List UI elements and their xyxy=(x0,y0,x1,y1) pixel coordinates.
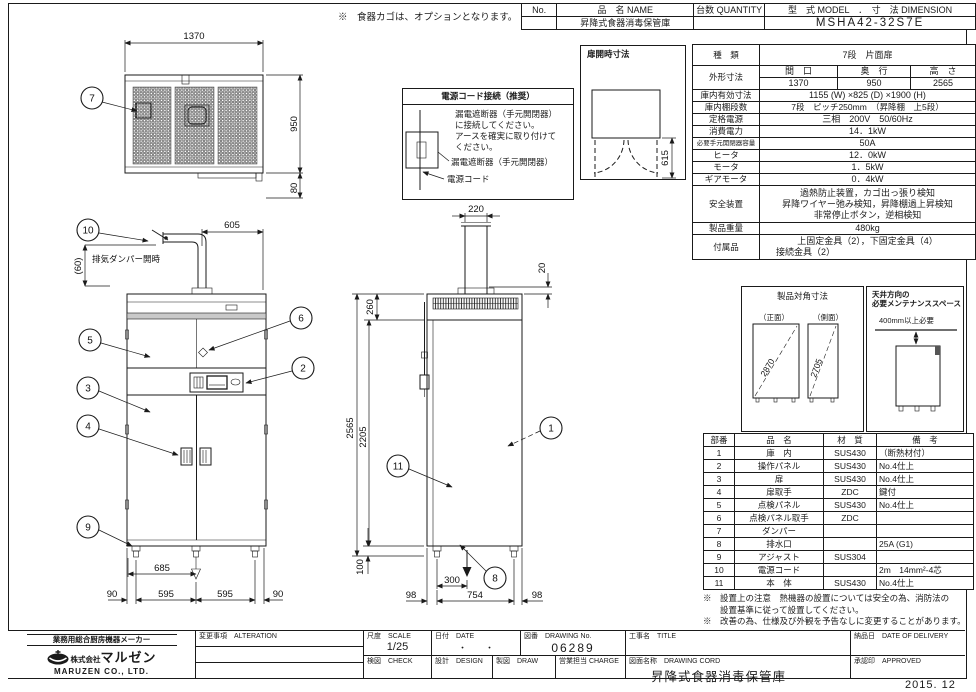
dim-damper-height: (60) xyxy=(73,258,84,275)
clearance-text: 400mm以上必要 xyxy=(879,316,934,325)
height-value: 2565 xyxy=(911,78,976,90)
svg-text:300: 300 xyxy=(444,575,460,586)
svg-text:595: 595 xyxy=(217,589,233,600)
svg-text:90: 90 xyxy=(273,589,284,600)
company-en: MARUZEN CO., LTD. xyxy=(8,667,195,676)
control-panel xyxy=(190,373,243,392)
svg-text:595: 595 xyxy=(158,589,174,600)
safety-line-2: 昇降ワイヤー弛み検知，昇降棚過上昇検知 xyxy=(762,199,973,210)
parts-row-8: 8排水口25A (G1) xyxy=(704,538,974,551)
svg-text:6: 6 xyxy=(298,314,304,325)
perforated-panel-right xyxy=(218,87,257,164)
check-cell: 検図 CHECK xyxy=(363,655,431,678)
svg-text:2: 2 xyxy=(300,364,306,375)
maker-logo-row: 株式会社マルゼン xyxy=(8,647,195,667)
no-value xyxy=(522,17,557,30)
svg-text:98: 98 xyxy=(532,590,543,601)
maker-tagline: 業務用総合厨房機器メーカー xyxy=(27,634,177,646)
depth-value: 950 xyxy=(838,78,911,90)
dim-plan-depth: 950 xyxy=(289,116,300,132)
parts-row-4: 4扉取手ZDC鍵付 xyxy=(704,486,974,499)
parts-row-6: 6点検パネル取手ZDC xyxy=(704,512,974,525)
svg-text:2205: 2205 xyxy=(358,426,369,447)
drawing-name-value: 昇降式食器消毒保管庫 xyxy=(626,666,850,685)
perforated-panel-center xyxy=(175,87,214,164)
kind-label: 種 類 xyxy=(693,45,760,66)
design-cell: 設計 DESIGN xyxy=(431,655,492,678)
adjustable-feet-front xyxy=(132,546,259,557)
svg-text:10: 10 xyxy=(82,226,94,237)
parts-row-7: 7ダンパー xyxy=(704,525,974,538)
maintenance-box: 天井方向の 必要メンテナンススペース 400mm以上必要 xyxy=(866,286,964,432)
parts-row-1: 1庫 内SUS430（断熱材付） xyxy=(704,447,974,460)
drawing-no-cell: 図番 DRAWING No. 06289 xyxy=(520,631,625,655)
model-value: MSHA42-32S7E xyxy=(765,17,976,30)
handle-detail xyxy=(199,348,208,357)
accessory-line-1: 上固定金具（2），下固定金具（4） xyxy=(762,236,973,247)
draw-cell: 製図 DRAW xyxy=(492,655,555,678)
svg-text:11: 11 xyxy=(393,462,404,473)
svg-text:7: 7 xyxy=(89,94,95,105)
maruzen-logo-icon xyxy=(46,650,70,665)
svg-text:2565: 2565 xyxy=(345,417,356,438)
drain-arrow-side xyxy=(463,567,472,577)
scale-cell: 尺度 SCALE 1/25 xyxy=(363,631,431,655)
svg-text:754: 754 xyxy=(467,590,483,601)
issue-date: 2015. 12 xyxy=(905,679,956,691)
parts-row-11: 11本 体SUS430No.4仕上 xyxy=(704,577,974,590)
date-value: ・ ・ xyxy=(432,641,520,654)
alteration-divider-1 xyxy=(196,646,363,647)
dim-drain-offset-front: 685 xyxy=(154,563,170,574)
parts-row-3: 3扉SUS430No.4仕上 xyxy=(704,473,974,486)
exhaust-note: 排気ダンパー開時 xyxy=(92,254,161,264)
delivery-cell: 納品日 DATE OF DELIVERY xyxy=(850,631,965,655)
plan-view: 1370 950 80 7 xyxy=(81,31,303,198)
svg-text:9: 9 xyxy=(85,523,91,534)
parts-row-10: 10電源コード2m 14mm²-4芯 xyxy=(704,564,974,577)
alteration-divider-2 xyxy=(196,662,363,663)
name-label: 品 名 NAME xyxy=(557,4,694,17)
technical-drawing-page: 1370 950 80 7 xyxy=(0,0,976,692)
diagonal-title: 製品対角寸法 xyxy=(742,287,863,302)
door-open-title: 扉開時寸法 xyxy=(581,46,685,60)
svg-text:5: 5 xyxy=(87,336,93,347)
drawing-name-cell: 図面名称 DRAWING CORD 昇降式食器消毒保管庫 xyxy=(625,655,850,678)
parts-table: 部番 品 名 材 質 備 考 1庫 内SUS430（断熱材付） 2操作パネルSU… xyxy=(703,433,974,590)
maker-cell: 業務用総合厨房機器メーカー 株式会社マルゼン MARUZEN CO., LTD. xyxy=(8,631,195,678)
charge-cell: 営業担当 CHARGE xyxy=(555,655,625,678)
title-block: 業務用総合厨房機器メーカー 株式会社マルゼン MARUZEN CO., LTD.… xyxy=(8,630,965,678)
dim-exhaust-offset: 605 xyxy=(224,220,240,231)
parts-row-9: 9アジャストSUS304 xyxy=(704,551,974,564)
parts-header-row: 部番 品 名 材 質 備 考 xyxy=(704,434,974,447)
diagonal-box: 製品対角寸法 （正面） （側面） xyxy=(741,286,864,432)
scale-value: 1/25 xyxy=(364,641,431,653)
header-table-values: 昇降式食器消毒保管庫 MSHA42-32S7E xyxy=(522,17,976,30)
svg-text:98: 98 xyxy=(406,590,417,601)
front-view: 605 (60) 排気ダンパー開時 685 90 595 595 90 10 5… xyxy=(73,219,314,604)
installation-notes: ※ 設置上の注意 熱機器の設置については安全の為、消防法の 設置基準に従って設置… xyxy=(703,593,966,628)
breaker-callout: 漏電遮断器（手元開閉器） xyxy=(451,157,553,168)
header-table-labels: No. 品 名 NAME 台数 QUANTITY 型 式 MODEL ． 寸 法… xyxy=(522,4,976,17)
safety-line-1: 過熱防止装置，カゴ出っ張り検知 xyxy=(762,188,973,199)
title-cell: 工事名 TITLE xyxy=(625,631,850,655)
svg-text:1: 1 xyxy=(548,424,554,435)
parts-row-2: 2操作パネルSUS430No.4仕上 xyxy=(704,460,974,473)
date-cell: 日付 DATE ・ ・ xyxy=(431,631,520,655)
svg-text:220: 220 xyxy=(468,204,484,215)
kind-value: 7段 片面扉 xyxy=(760,45,976,66)
model-label: 型 式 MODEL ． 寸 法 DIMENSION xyxy=(765,4,976,17)
option-note: ※ 食器カゴは、オプションとなります。 xyxy=(338,9,517,23)
qty-value xyxy=(694,17,765,30)
spec-table: 種 類 7段 片面扉 外形寸法 間 口 奥 行 高 さ 1370 950 256… xyxy=(692,44,976,260)
drawing-no-value: 06289 xyxy=(521,641,625,655)
approved-cell: 承認印 APPROVED xyxy=(850,655,965,678)
power-cord-box: 電源コード接続（推奨） 漏電遮断器（手元開閉器） に接続してください。 アースを… xyxy=(402,88,574,200)
safety-line-3: 非常停止ボタン，逆相検知 xyxy=(762,210,973,221)
parts-row-5: 5点検パネルSUS430No.4仕上 xyxy=(704,499,974,512)
name-value: 昇降式食器消毒保管庫 xyxy=(557,17,694,30)
svg-text:8: 8 xyxy=(492,574,498,585)
company-prefix: 株式会社 xyxy=(70,655,100,664)
power-cord-title: 電源コード接続（推奨） xyxy=(403,89,573,105)
side-view: 220 20 260 2565 2205 100 300 98 7 xyxy=(345,204,562,605)
dim-plan-width: 1370 xyxy=(183,31,204,42)
alteration-cell: 変更事項 ALTERATION xyxy=(195,631,363,678)
cord-callout: 電源コード xyxy=(447,174,490,185)
accessory-line-2: 接続金具（2） xyxy=(762,247,973,258)
width-value: 1370 xyxy=(760,78,838,90)
svg-text:90: 90 xyxy=(107,589,118,600)
no-label: No. xyxy=(522,4,557,17)
power-cord xyxy=(420,302,429,397)
outer-dim-label: 外形寸法 xyxy=(693,66,760,90)
svg-text:20: 20 xyxy=(537,263,548,274)
company-name: マルゼン xyxy=(100,650,156,665)
adjustable-feet-side xyxy=(433,546,518,557)
dim-plan-back: 80 xyxy=(289,183,300,194)
door-open-box: 扉開時寸法 xyxy=(580,45,686,180)
qty-label: 台数 QUANTITY xyxy=(694,4,765,17)
header-table: No. 品 名 NAME 台数 QUANTITY 型 式 MODEL ． 寸 法… xyxy=(521,3,976,30)
svg-text:260: 260 xyxy=(365,299,376,315)
perforated-panel-left xyxy=(133,87,171,164)
svg-text:100: 100 xyxy=(355,559,366,575)
svg-text:3: 3 xyxy=(85,384,91,395)
svg-text:4: 4 xyxy=(85,422,91,433)
